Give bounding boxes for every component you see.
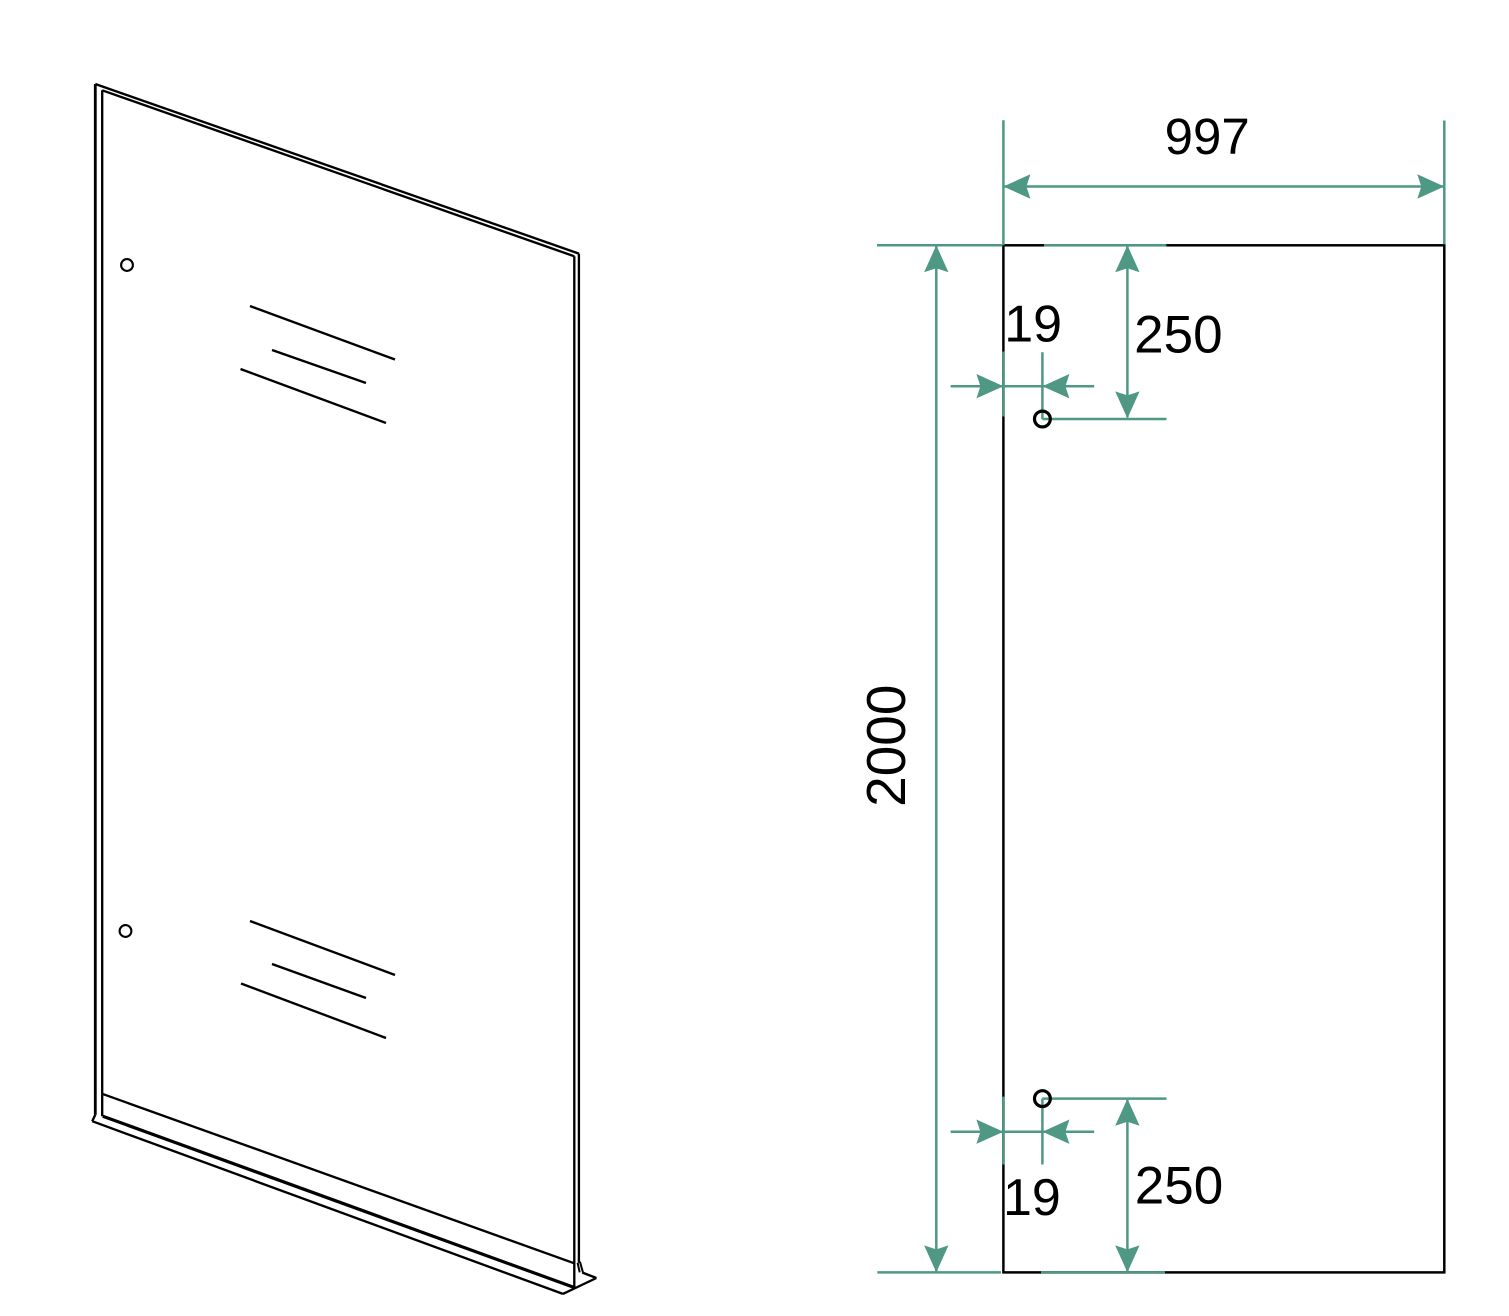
svg-text:250: 250 bbox=[1134, 306, 1222, 365]
svg-text:19: 19 bbox=[1003, 1169, 1061, 1227]
svg-text:2000: 2000 bbox=[855, 685, 917, 807]
svg-text:997: 997 bbox=[1165, 108, 1250, 165]
svg-text:250: 250 bbox=[1135, 1156, 1223, 1215]
svg-text:19: 19 bbox=[1004, 296, 1062, 354]
